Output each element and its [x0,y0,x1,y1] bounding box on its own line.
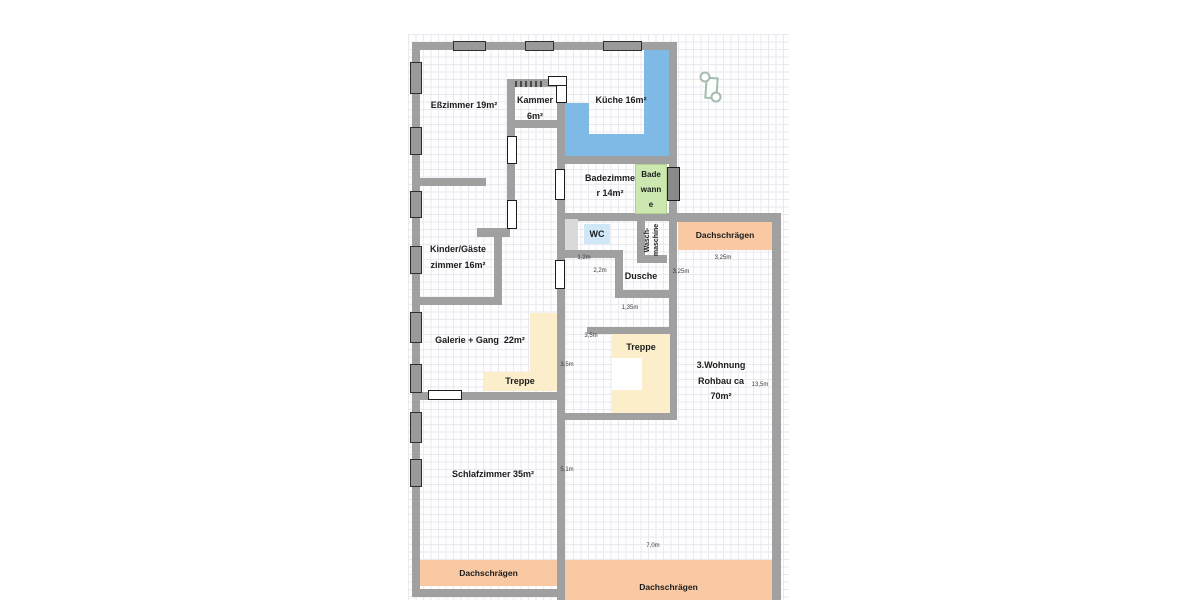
wall [412,589,565,597]
window [453,41,486,51]
wall [677,213,781,222]
dimension-label: 3,5m [580,333,602,339]
roof-slope-band [565,560,772,600]
wall [772,213,781,600]
room-label-kueche: Küche 16m² [583,95,659,106]
room-label-schlafzimmer: Schlafzimmer 35m² [440,469,546,480]
label-treppe-galerie: Treppe [483,376,557,387]
dimension-label: 1,2m [572,255,596,261]
window [428,390,462,400]
kitchen-counter [644,50,669,134]
room-label-kammer: Kammer6m² [510,92,560,124]
dimension-label: 1,35m [617,305,643,311]
room-label-badezimmer: Badezimmer 14m² [578,171,642,201]
window [410,191,422,218]
window [410,62,422,94]
dimension-label: 13,5m [746,382,774,388]
kitchen-counter [565,103,589,134]
window [525,41,554,51]
label-dach-oben: Dachschrägen [678,230,772,240]
door [555,260,565,289]
dimension-label: 3,25m [668,269,694,275]
kitchen-counter [565,134,669,156]
wall [412,297,502,305]
door [507,200,517,229]
door [667,167,680,201]
window [410,364,422,393]
wall [615,290,677,298]
dimension-label: 7,0m [642,543,664,549]
dimension-label: 2,2m [588,268,612,274]
floor-plan-canvas: Badewanne WC Eßzimmer 19m² Kammer6m² Küc… [0,0,1200,600]
wall [557,413,677,420]
dimension-label: 3,5m [556,362,578,368]
radiator-hatch [515,81,545,87]
room-label-galerie: Galerie + Gang 22m² [420,335,540,346]
label-dach-links: Dachschrägen [420,568,557,578]
door-symbol-icon [697,68,727,104]
label-treppe-mitte: Treppe [612,342,670,353]
room-label-dusche: Dusche [613,271,669,282]
wc-area: WC [584,224,610,244]
door [555,169,565,200]
wall [669,42,677,420]
label-waschmaschine: Wasch-maschine [643,212,667,268]
room-label-esszimmer: Eßzimmer 19m² [418,100,510,111]
wc-label: WC [590,229,605,239]
label-dach-unten: Dachschrägen [565,582,772,592]
room-label-kinder: Kinder/Gästezimmer 16m² [420,241,496,273]
wall [412,178,486,186]
bathtub-label: Bade [641,170,661,179]
staircase-cutout [612,358,642,390]
window [410,127,422,155]
window [603,41,642,51]
dimension-label: 3,25m [710,255,736,261]
window [410,459,422,487]
grid-background [408,34,789,600]
window [410,412,422,443]
shower-block [565,219,578,250]
wall [557,156,677,164]
door [507,136,517,164]
dimension-label: 5,1m [556,467,578,473]
